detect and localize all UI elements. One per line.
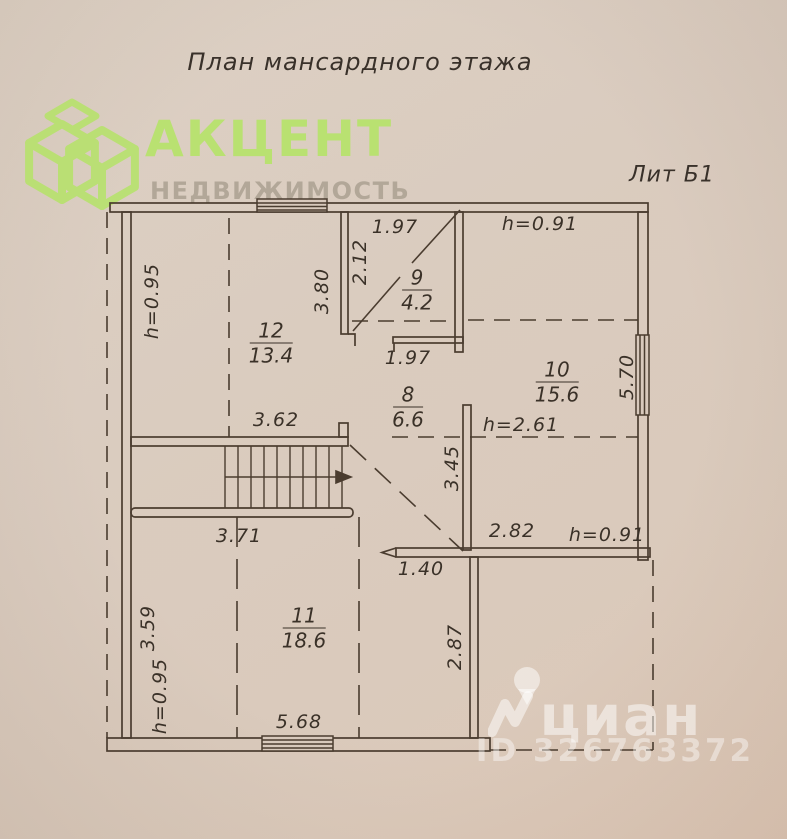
dim-width-197-bottom: 1.97: [385, 347, 431, 369]
room-label-11: 11 18.6: [282, 605, 327, 652]
dim-height-091-top: h=0.91: [502, 213, 578, 235]
room-12-number: 12: [249, 320, 292, 344]
dim-height-261: h=2.61: [483, 414, 559, 436]
dim-width-212: 2.12: [349, 239, 371, 285]
cian-watermark-id: ID 326763372: [476, 733, 754, 769]
room-11-number: 11: [282, 605, 325, 629]
room-8-number: 8: [393, 384, 424, 408]
room-label-8: 8 6.6: [392, 384, 424, 431]
stair-direction-arrow: [225, 471, 351, 483]
room-11-area: 18.6: [282, 629, 327, 652]
dim-width-568: 5.68: [276, 711, 322, 733]
dim-width-345: 3.45: [441, 445, 463, 491]
dim-width-371: 3.71: [216, 525, 262, 547]
dim-width-570: 5.70: [616, 354, 638, 400]
room-9-area: 4.2: [401, 291, 433, 314]
room-10-area: 15.6: [535, 383, 580, 406]
room-8-area: 6.6: [392, 408, 424, 431]
room-label-9: 9 4.2: [401, 267, 433, 314]
dim-width-287: 2.87: [444, 624, 466, 670]
dashed-contour-lines: [107, 212, 653, 750]
dim-width-197-top: 1.97: [372, 216, 418, 238]
dim-height-095-top: h=0.95: [141, 263, 163, 339]
window-top: [257, 199, 327, 212]
window-bottom: [262, 736, 333, 751]
dim-height-095-bottom: h=0.95: [149, 658, 171, 734]
room-12-area: 13.4: [249, 344, 294, 367]
dim-width-282: 2.82: [489, 520, 535, 542]
room-label-10: 10 15.6: [535, 359, 580, 406]
room-9-number: 9: [402, 267, 433, 291]
outer-walls: [107, 203, 648, 751]
room-10-number: 10: [535, 359, 578, 383]
dim-width-359: 3.59: [137, 605, 159, 651]
interior-walls: [131, 212, 650, 738]
scanned-floorplan-page: План мансардного этажа Лит Б1 АКЦЕНТ НЕД…: [0, 0, 787, 839]
dim-height-091-mid: h=0.91: [569, 524, 645, 546]
room-label-12: 12 13.4: [249, 320, 294, 367]
dim-width-380: 3.80: [311, 268, 333, 314]
dim-width-362: 3.62: [253, 409, 299, 431]
dim-width-140: 1.40: [398, 558, 444, 580]
